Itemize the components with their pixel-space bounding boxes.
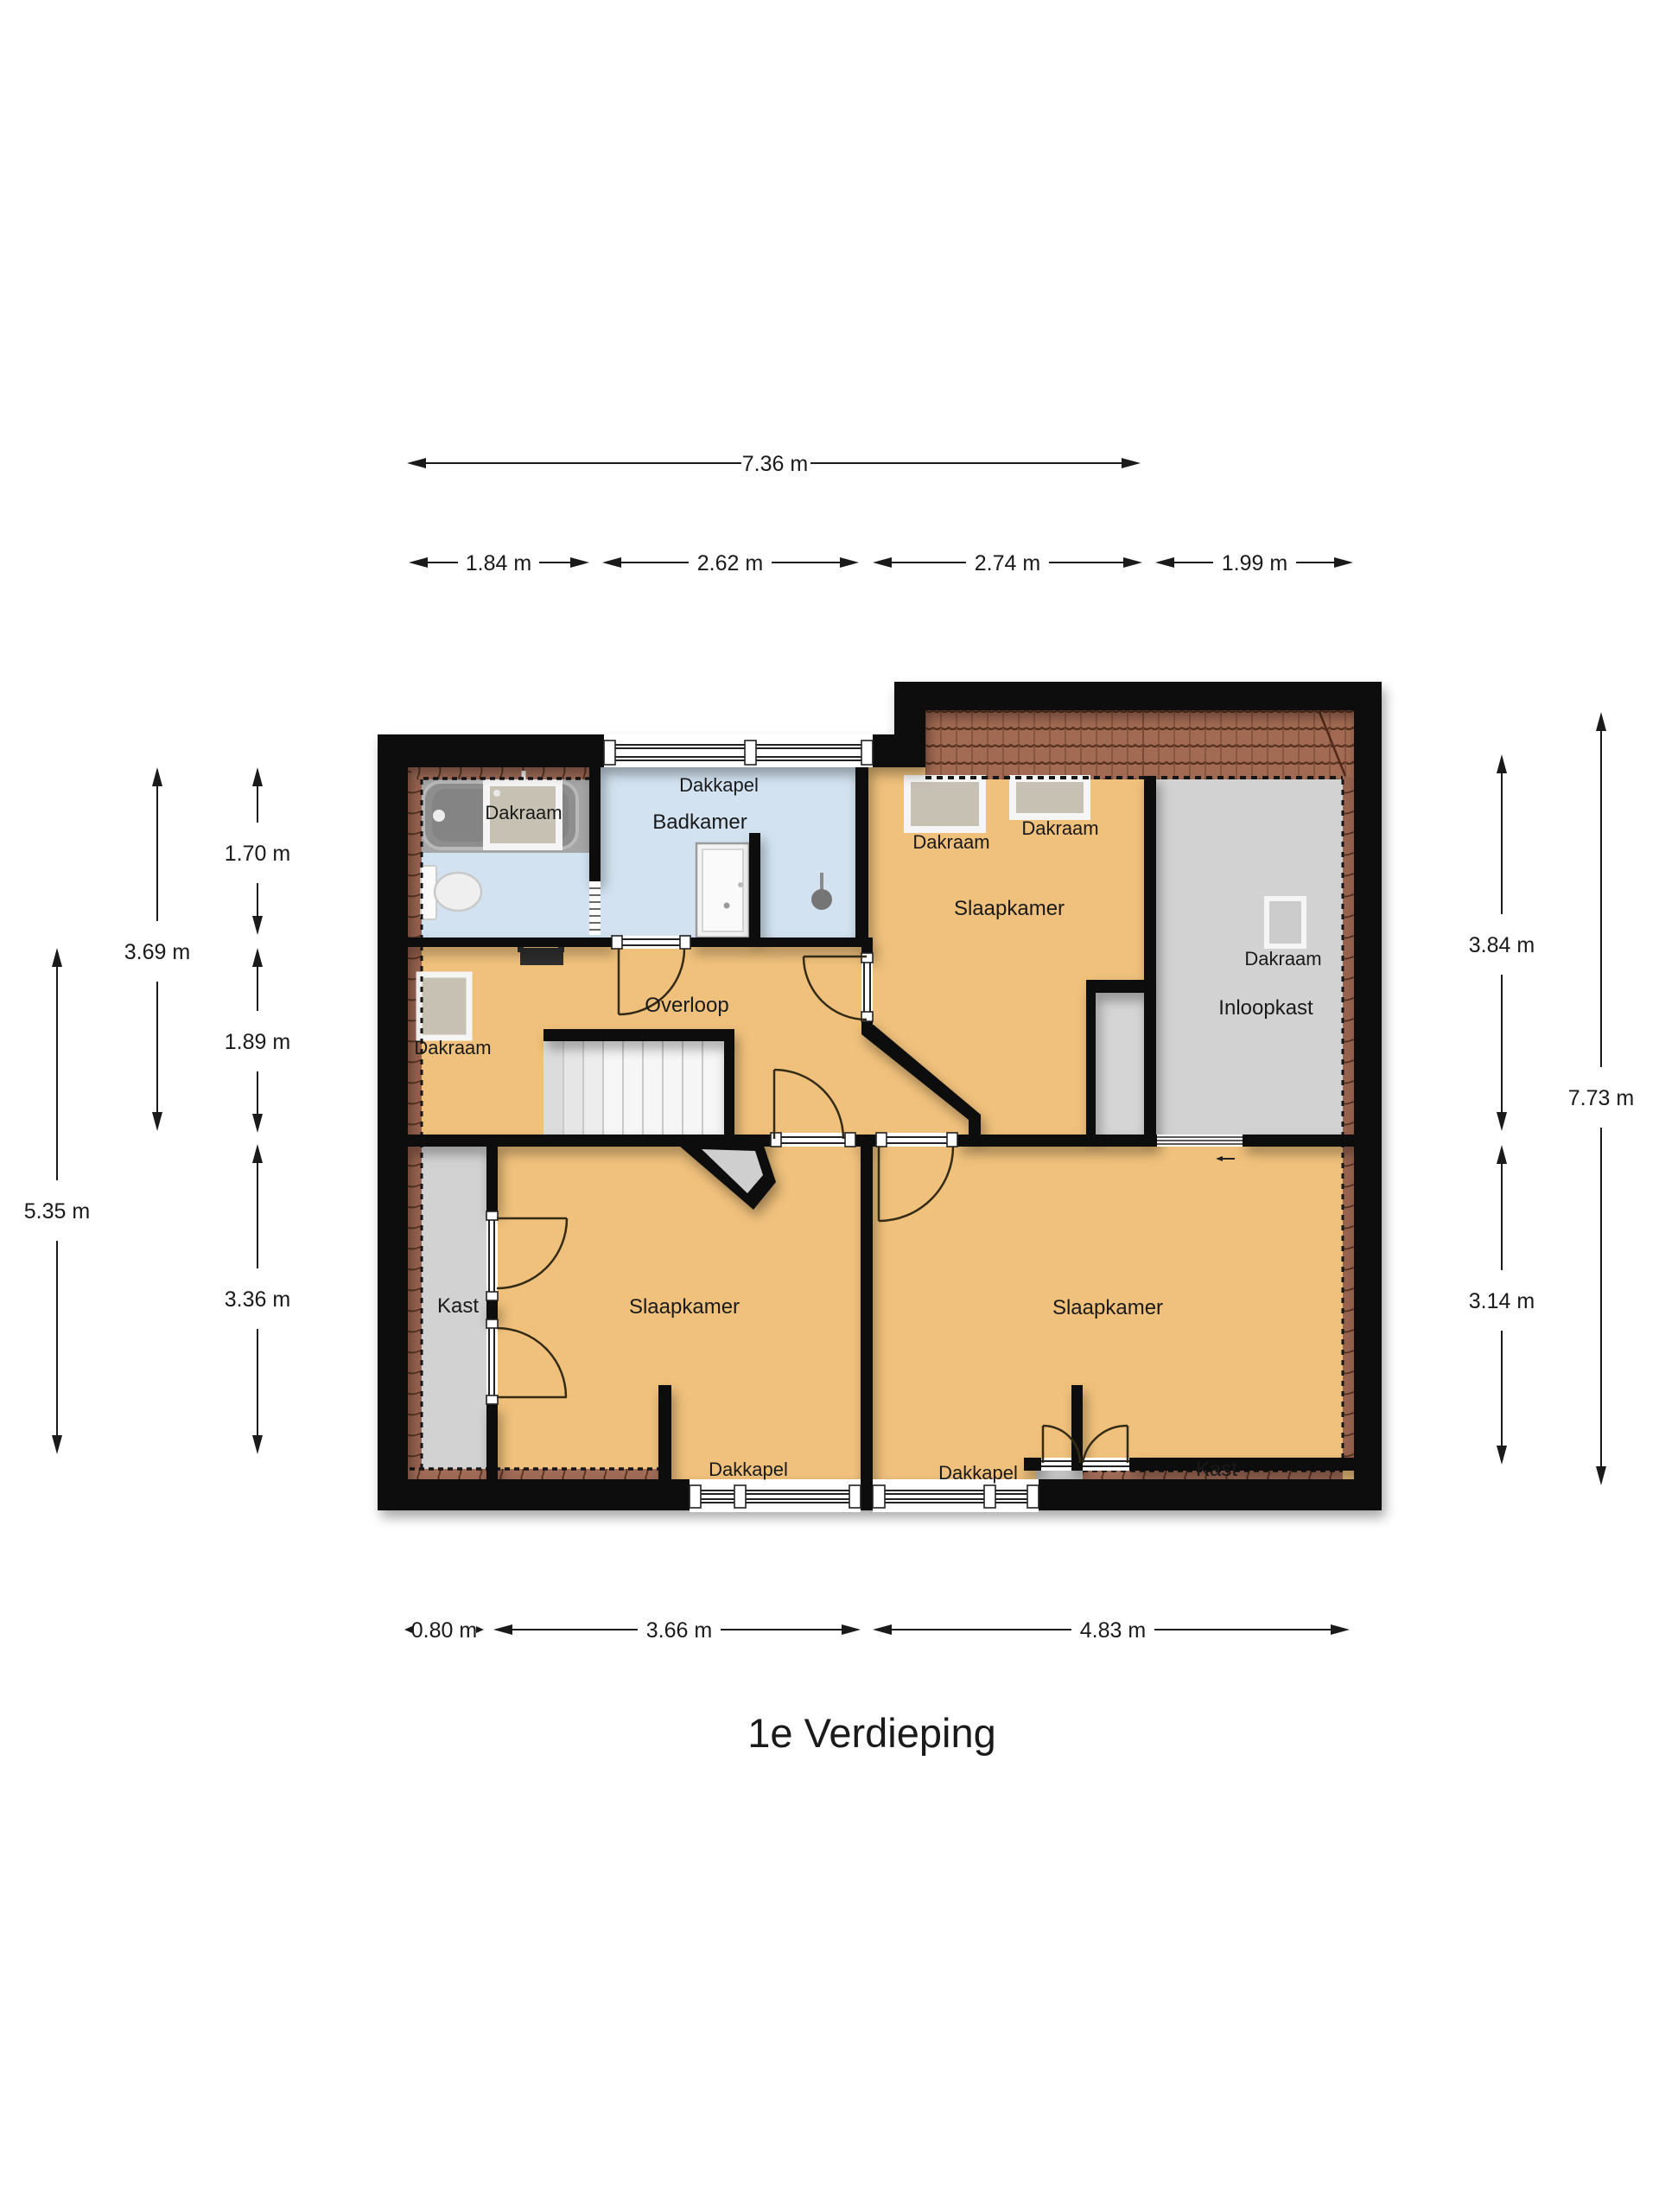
svg-text:3.14 m: 3.14 m bbox=[1469, 1289, 1535, 1313]
svg-text:1.70 m: 1.70 m bbox=[225, 842, 290, 866]
svg-text:3.84 m: 3.84 m bbox=[1469, 933, 1535, 957]
svg-text:4.83 m: 4.83 m bbox=[1080, 1618, 1146, 1643]
svg-text:2.62 m: 2.62 m bbox=[697, 551, 763, 575]
svg-text:Dakkapel: Dakkapel bbox=[709, 1459, 788, 1480]
svg-text:Kast: Kast bbox=[1196, 1458, 1237, 1481]
svg-text:3.69 m: 3.69 m bbox=[124, 940, 190, 964]
svg-text:Slaapkamer: Slaapkamer bbox=[629, 1295, 740, 1319]
svg-text:3.66 m: 3.66 m bbox=[646, 1618, 712, 1643]
svg-text:1e Verdieping: 1e Verdieping bbox=[747, 1710, 995, 1756]
svg-text:Dakraam: Dakraam bbox=[1021, 817, 1098, 839]
svg-text:Dakraam: Dakraam bbox=[1244, 948, 1321, 969]
svg-text:1.99 m: 1.99 m bbox=[1222, 551, 1287, 575]
svg-text:Kast: Kast bbox=[437, 1294, 479, 1318]
svg-text:7.73 m: 7.73 m bbox=[1568, 1086, 1634, 1110]
svg-text:0.80 m: 0.80 m bbox=[411, 1618, 477, 1643]
svg-text:Dakraam: Dakraam bbox=[414, 1037, 491, 1058]
svg-text:3.36 m: 3.36 m bbox=[225, 1287, 290, 1312]
svg-text:5.35 m: 5.35 m bbox=[24, 1199, 90, 1224]
svg-text:Slaapkamer: Slaapkamer bbox=[954, 897, 1065, 920]
svg-text:7.36 m: 7.36 m bbox=[742, 452, 808, 476]
svg-text:Slaapkamer: Slaapkamer bbox=[1052, 1296, 1163, 1319]
svg-text:Badkamer: Badkamer bbox=[652, 810, 747, 834]
svg-text:Dakraam: Dakraam bbox=[912, 831, 989, 853]
svg-text:Inloopkast: Inloopkast bbox=[1218, 996, 1313, 1020]
svg-text:1.89 m: 1.89 m bbox=[225, 1030, 290, 1054]
svg-text:Overloop: Overloop bbox=[645, 994, 728, 1017]
svg-text:Dakkapel: Dakkapel bbox=[938, 1462, 1018, 1484]
svg-text:Dakkapel: Dakkapel bbox=[679, 774, 759, 796]
svg-text:Dakraam: Dakraam bbox=[485, 802, 562, 823]
svg-text:2.74 m: 2.74 m bbox=[975, 551, 1040, 575]
svg-text:1.84 m: 1.84 m bbox=[466, 551, 531, 575]
